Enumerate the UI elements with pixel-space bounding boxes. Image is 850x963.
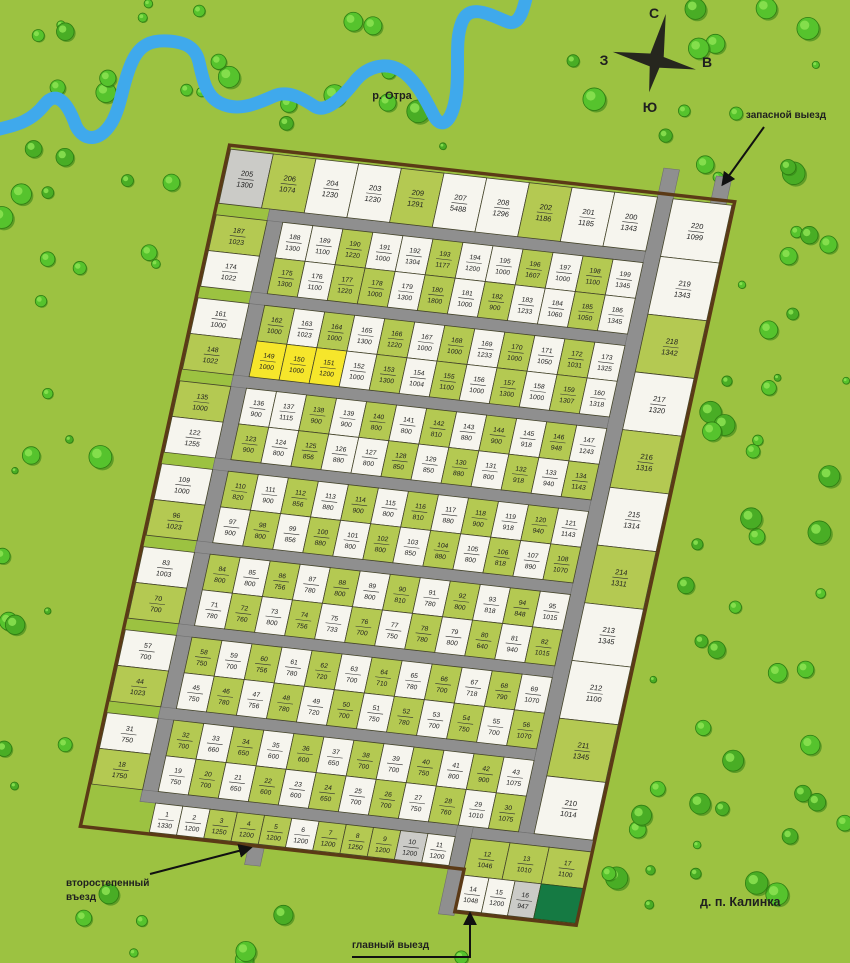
tree-icon xyxy=(774,374,782,382)
compass-north-label: С xyxy=(649,5,659,21)
plot-shape xyxy=(99,713,158,754)
plot-shape xyxy=(623,372,694,436)
village-label: д. п. Калинка xyxy=(700,895,782,909)
tree-icon xyxy=(12,467,19,474)
plot-shape xyxy=(534,776,605,840)
tree-icon xyxy=(130,949,139,958)
plot-211[interactable]: 2111345 xyxy=(547,718,618,782)
tree-icon xyxy=(843,377,850,384)
tree-icon xyxy=(440,143,447,150)
site-plan-map: р. Отра С Ю З В 205130020610742041230203… xyxy=(0,0,850,963)
tree-icon xyxy=(66,436,74,444)
plot-122[interactable]: 1221255 xyxy=(164,416,223,457)
plot-shape xyxy=(559,660,630,724)
river-label: р. Отра xyxy=(372,90,412,102)
reserve-exit-label: запасной выезд xyxy=(746,110,827,121)
tree-icon xyxy=(138,13,148,23)
plot-109[interactable]: 1091000 xyxy=(154,464,213,505)
tree-icon xyxy=(44,608,51,615)
tree-icon xyxy=(650,676,657,683)
plot-187[interactable]: 1871023 xyxy=(208,215,267,256)
plot-shape xyxy=(648,256,719,320)
plot-83[interactable]: 831003 xyxy=(136,547,195,588)
plot-70[interactable]: 70700 xyxy=(128,582,187,623)
compass-west-label: З xyxy=(600,52,609,68)
plot-shape xyxy=(110,665,169,706)
tree-icon xyxy=(151,260,161,270)
plot-shape xyxy=(597,487,668,551)
plot-31[interactable]: 31750 xyxy=(99,713,158,754)
plot-shape xyxy=(422,834,456,866)
tree-icon xyxy=(738,281,746,289)
plot-216[interactable]: 2161316 xyxy=(610,430,681,494)
plot-shape xyxy=(190,298,249,339)
plot-213[interactable]: 2131345 xyxy=(572,603,643,667)
plot-shape xyxy=(585,545,656,609)
plot-shape xyxy=(118,630,177,671)
plot-shape xyxy=(547,718,618,782)
secondary-entrance-label-line1: второстепенный xyxy=(66,878,149,889)
compass-south-label: Ю xyxy=(643,99,657,115)
plot-shape xyxy=(635,314,706,378)
plot-shape xyxy=(208,215,267,256)
plot-shape xyxy=(201,251,260,292)
plot-shape xyxy=(136,547,195,588)
plot-shape xyxy=(182,334,241,375)
plot-shape xyxy=(128,582,187,623)
tree-icon xyxy=(812,61,820,69)
compass-east-label: В xyxy=(702,54,712,70)
plot-215[interactable]: 2151314 xyxy=(597,487,668,551)
plot-212[interactable]: 2121100 xyxy=(559,660,630,724)
tree-icon xyxy=(11,782,20,791)
plot-44[interactable]: 441023 xyxy=(110,665,169,706)
plot-57[interactable]: 57700 xyxy=(118,630,177,671)
plot-shape xyxy=(146,499,205,540)
plot-214[interactable]: 2141311 xyxy=(585,545,656,609)
plot-shape xyxy=(610,430,681,494)
plot-shape xyxy=(154,464,213,505)
plot-shape xyxy=(572,603,643,667)
plot-11[interactable]: 111200 xyxy=(422,834,456,866)
secondary-entrance-label-line2: въезд xyxy=(66,892,97,903)
plot-shape xyxy=(92,748,151,789)
plot-161[interactable]: 1611000 xyxy=(190,298,249,339)
plot-96[interactable]: 961023 xyxy=(146,499,205,540)
plot-220[interactable]: 2201099 xyxy=(661,199,732,263)
tree-icon xyxy=(693,841,701,849)
plot-18[interactable]: 181750 xyxy=(92,748,151,789)
plot-219[interactable]: 2191343 xyxy=(648,256,719,320)
site-plan: р. Отра С Ю З В 205130020610742041230203… xyxy=(0,0,850,963)
tree-icon xyxy=(645,900,655,910)
plot-217[interactable]: 2171320 xyxy=(623,372,694,436)
plot-135[interactable]: 1351000 xyxy=(172,381,231,422)
plot-218[interactable]: 2181342 xyxy=(635,314,706,378)
plot-210[interactable]: 2101014 xyxy=(534,776,605,840)
plot-shape xyxy=(164,416,223,457)
plot-shape xyxy=(172,381,231,422)
plot-shape xyxy=(661,199,732,263)
main-exit-label: главный выезд xyxy=(352,940,430,951)
plot-174[interactable]: 1741022 xyxy=(201,251,260,292)
plot-148[interactable]: 1481022 xyxy=(182,334,241,375)
